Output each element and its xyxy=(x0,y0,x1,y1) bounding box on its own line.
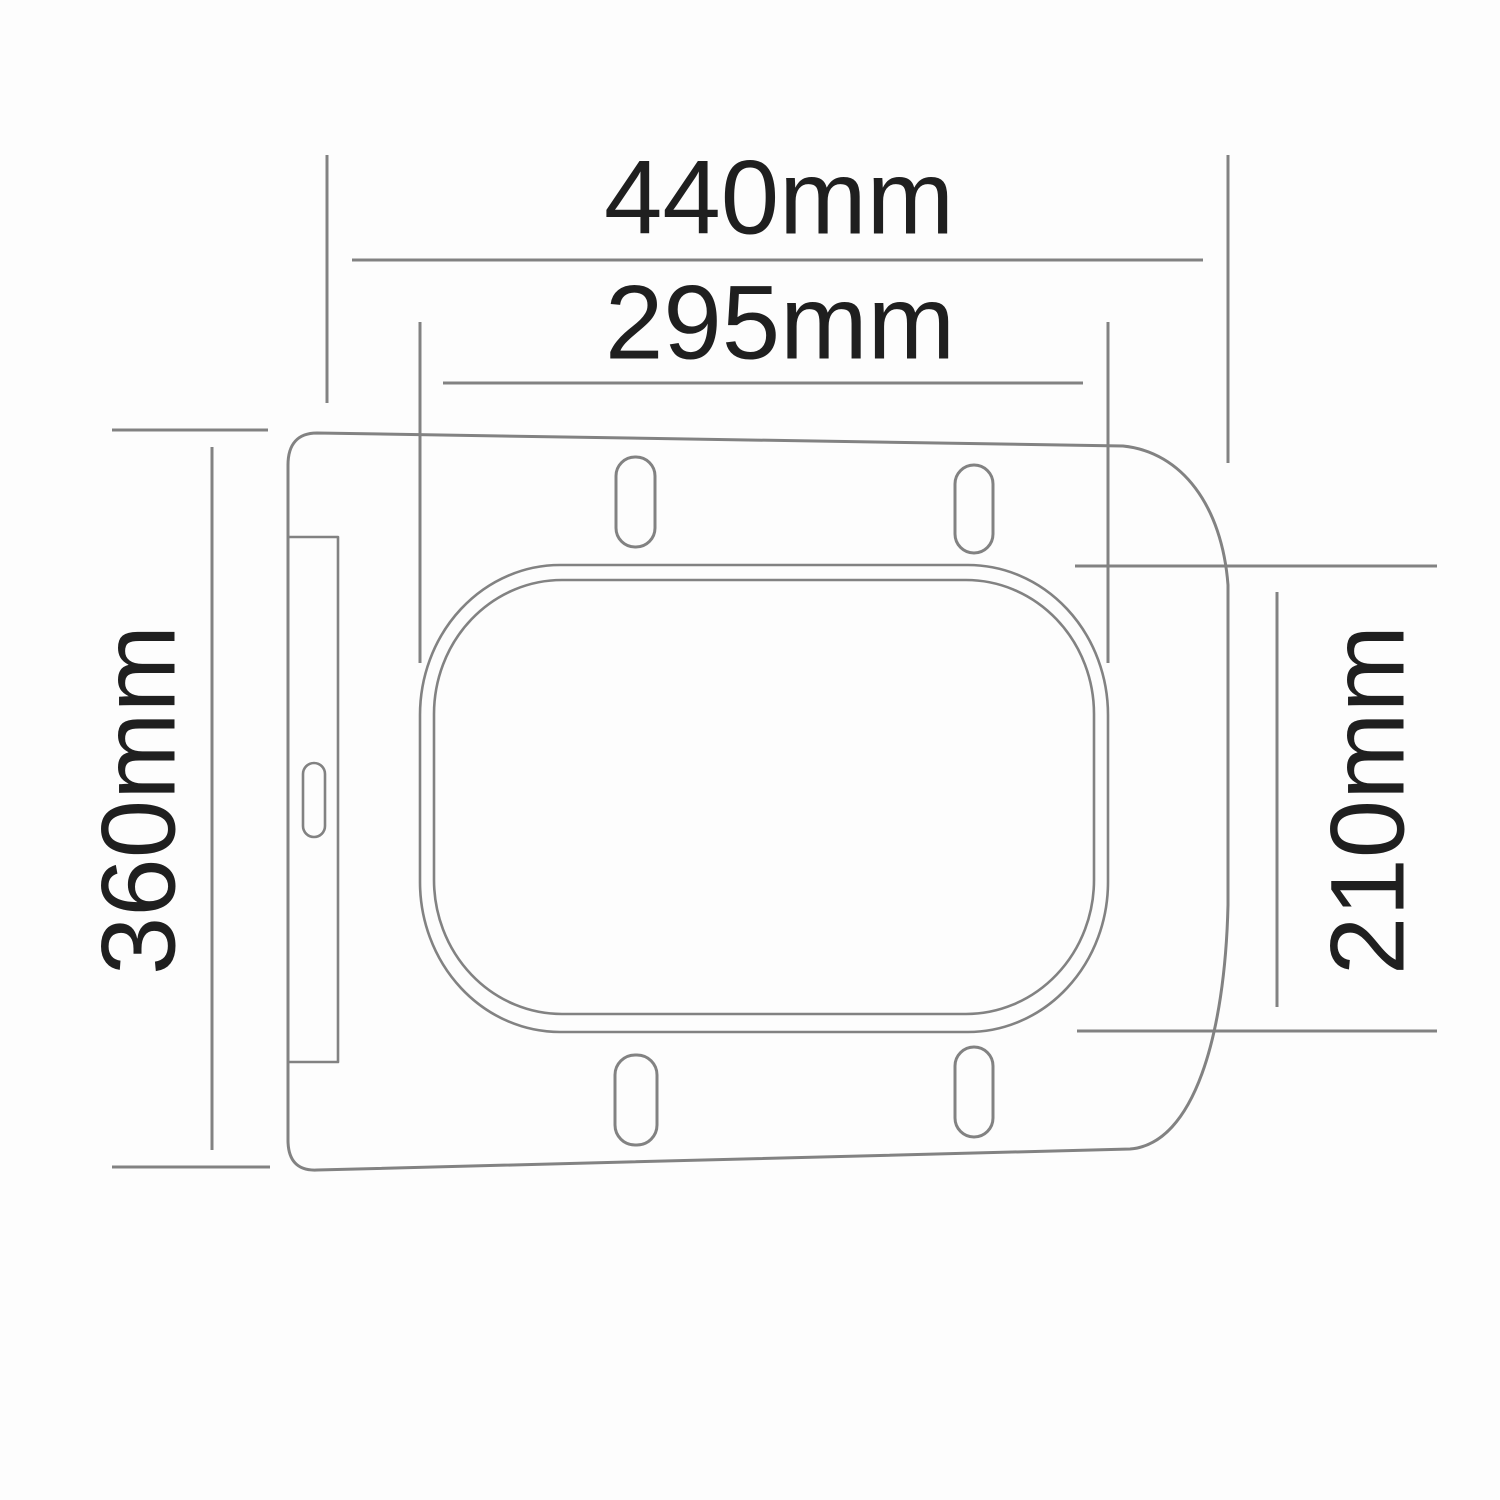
dim-label-overall-width: 440mm xyxy=(604,146,954,251)
dim-label-inner-width: 295mm xyxy=(605,271,955,376)
slot-top-left xyxy=(616,457,655,547)
diagram-canvas: 440mm 295mm 360mm 210mm xyxy=(0,0,1500,1500)
hinge-plate-slot xyxy=(303,763,325,837)
hinge-plate-outline xyxy=(289,537,338,1062)
opening-outer-rim xyxy=(420,565,1108,1032)
slot-top-right xyxy=(955,465,993,553)
slot-bottom-right xyxy=(955,1047,993,1137)
opening-inner-rim xyxy=(434,580,1094,1014)
dim-label-overall-depth: 360mm xyxy=(87,625,192,975)
dim-label-inner-depth: 210mm xyxy=(1316,625,1421,975)
slot-bottom-left xyxy=(615,1055,657,1145)
seat-outer-outline xyxy=(288,433,1228,1170)
